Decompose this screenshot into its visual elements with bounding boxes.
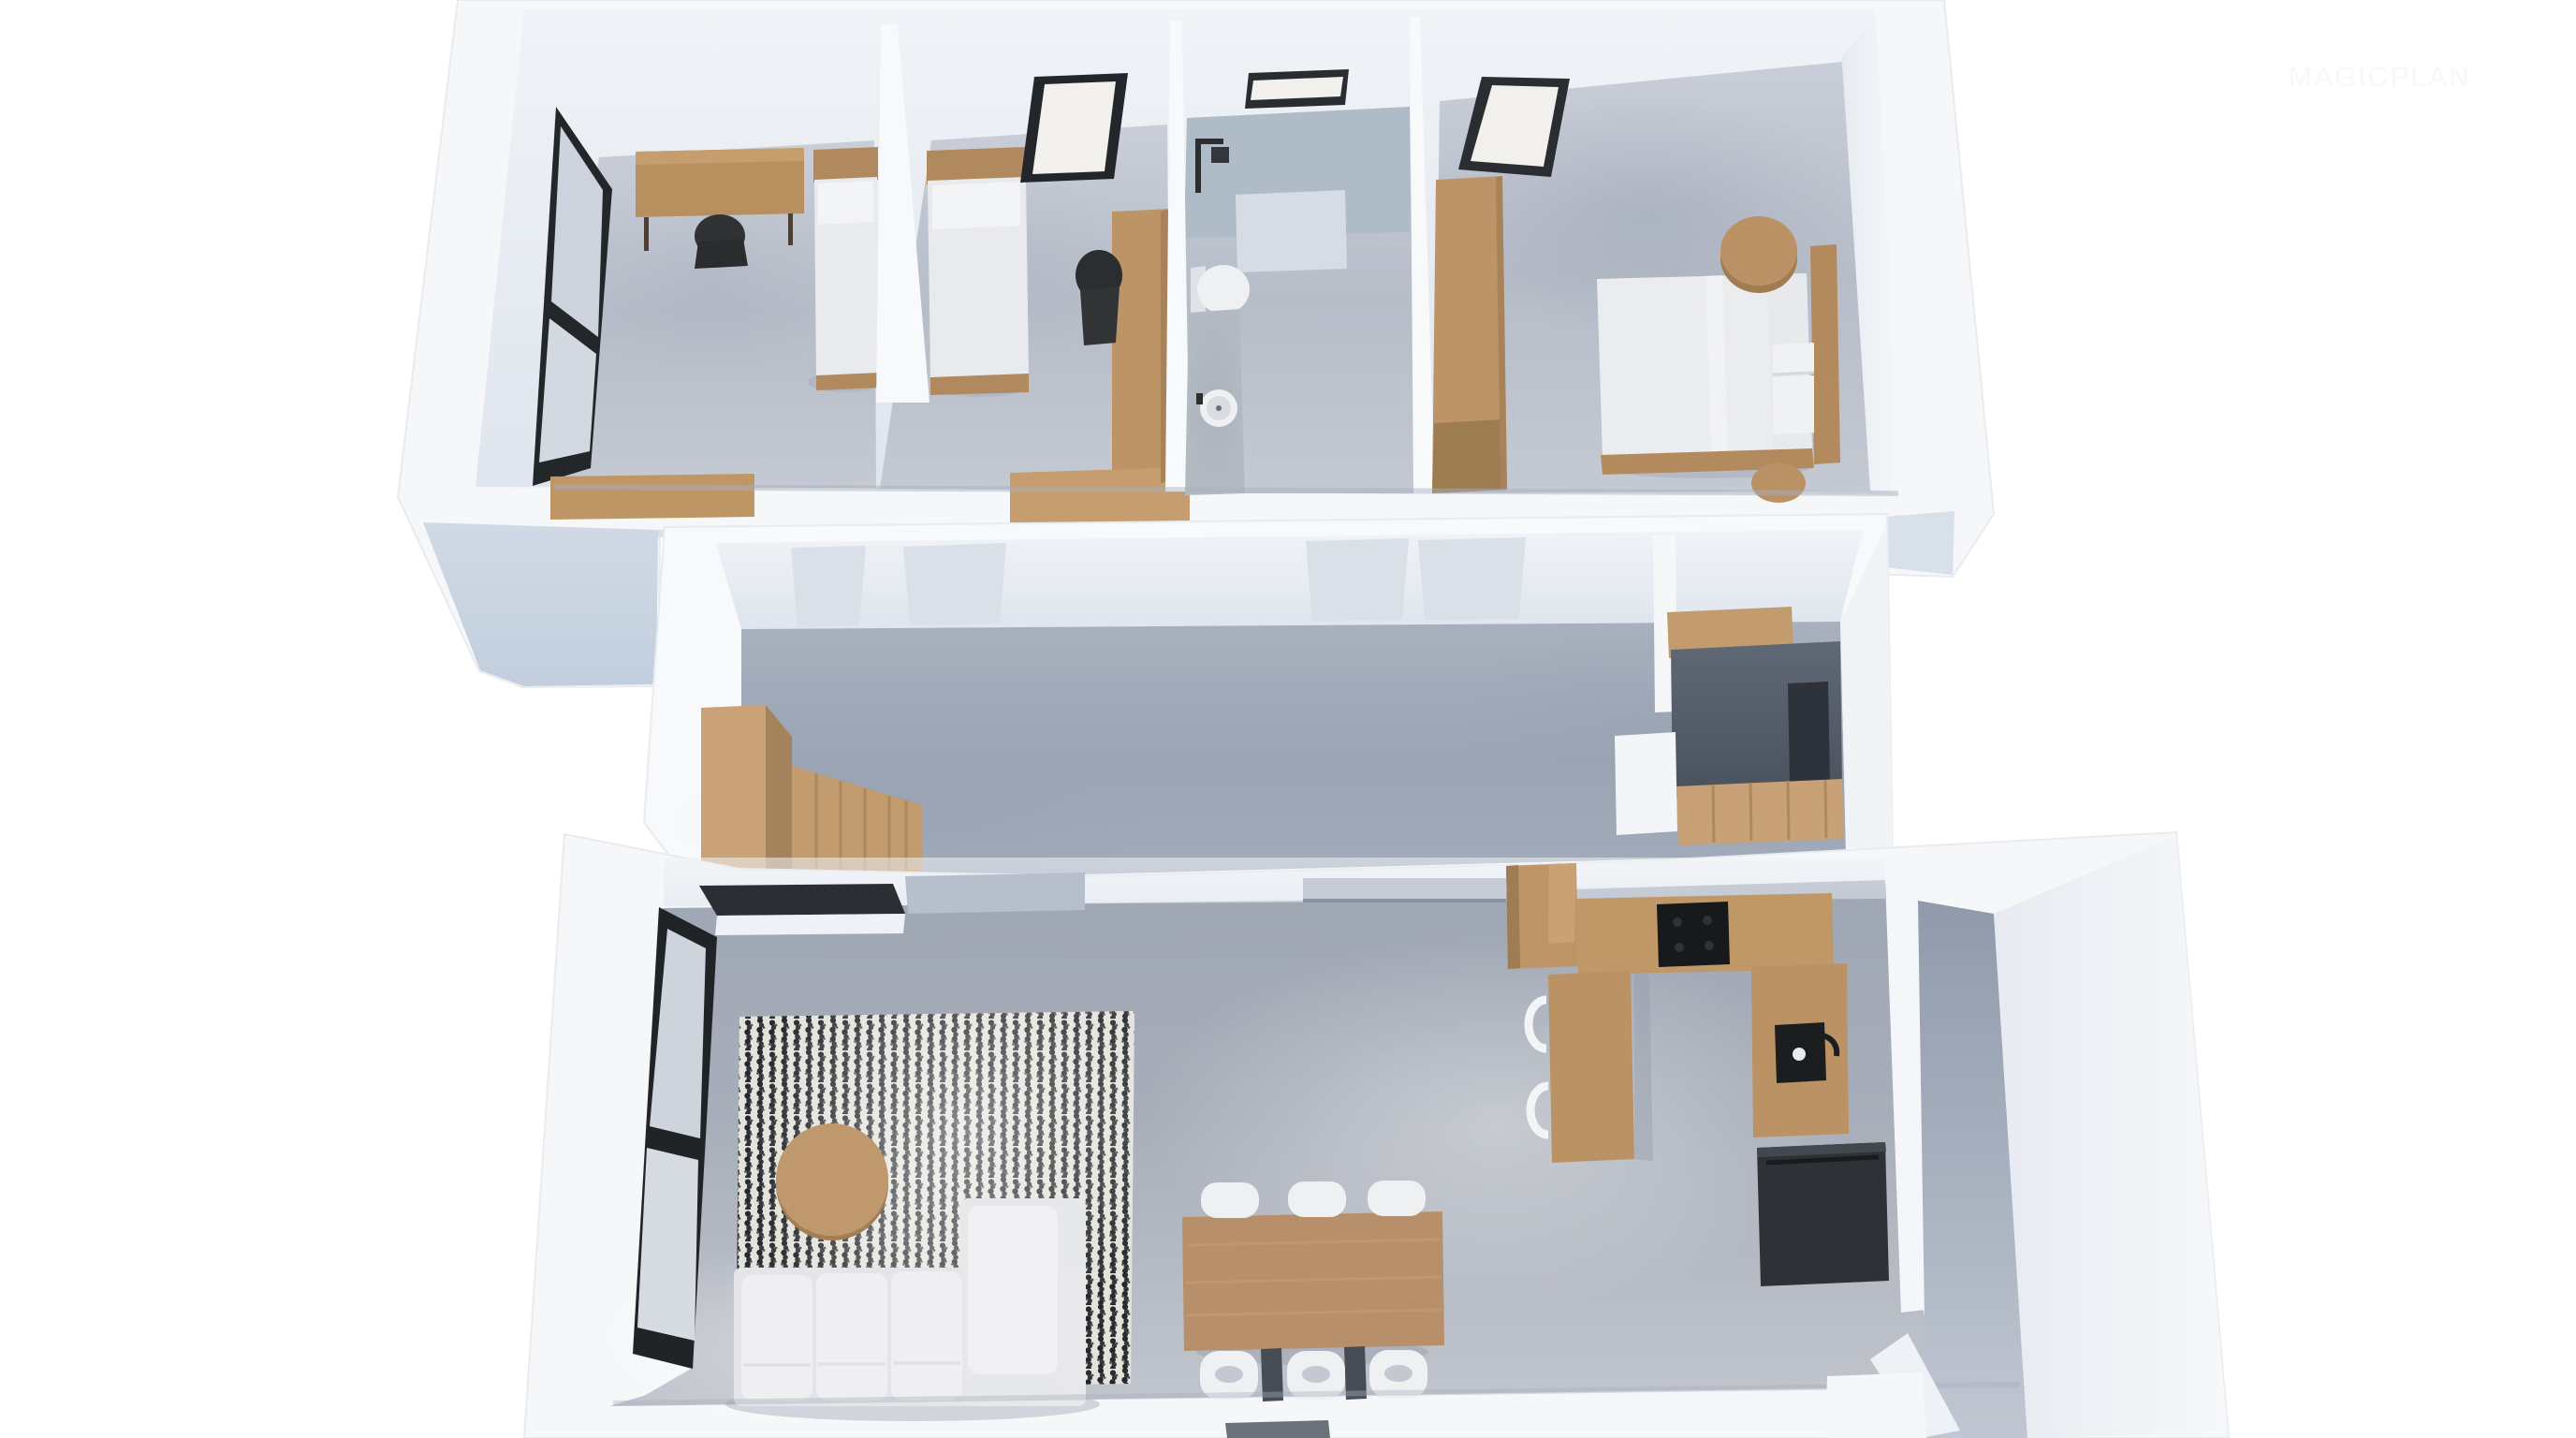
svg-text:MAGICPLAN: MAGICPLAN <box>2289 62 2471 93</box>
